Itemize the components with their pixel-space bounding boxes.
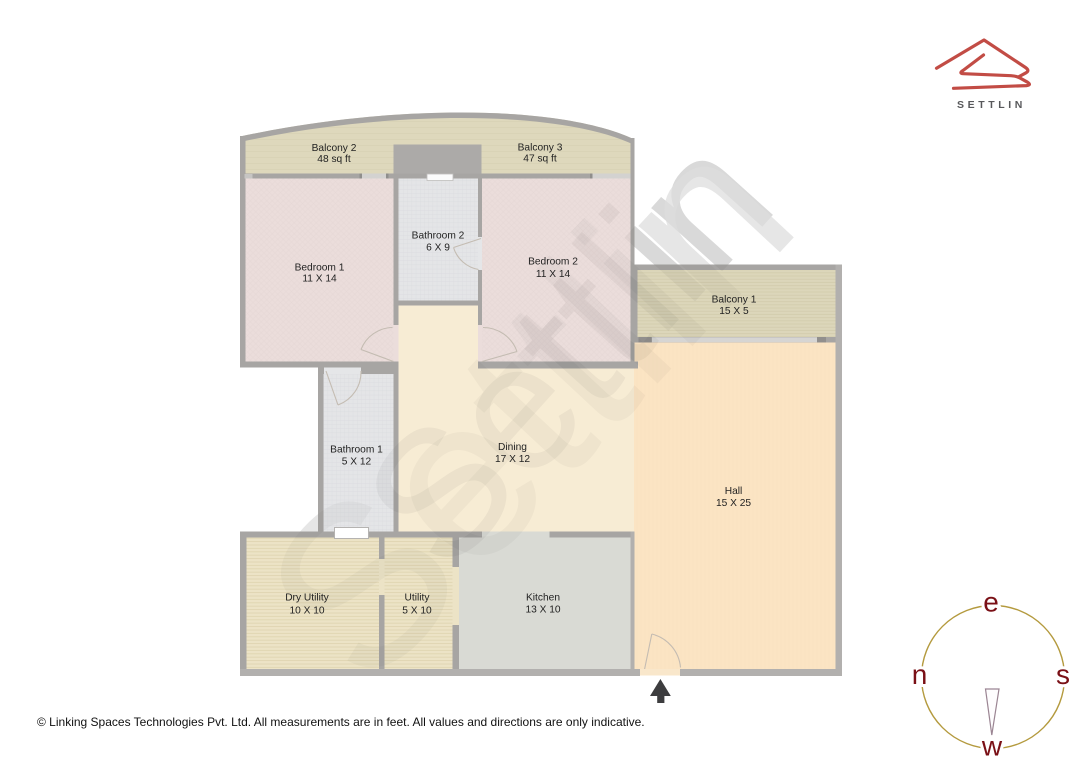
svg-text:11 X 14: 11 X 14 — [302, 274, 337, 285]
svg-text:13 X 10: 13 X 10 — [525, 604, 560, 615]
svg-text:6 X 9: 6 X 9 — [426, 243, 450, 254]
svg-text:© Linking Spaces Technologies: © Linking Spaces Technologies Pvt. Ltd. … — [37, 715, 645, 729]
svg-text:Kitchen: Kitchen — [526, 593, 560, 604]
svg-text:e: e — [983, 587, 999, 618]
svg-text:Dining: Dining — [498, 442, 527, 453]
svg-text:Utility: Utility — [405, 593, 431, 604]
svg-text:Hall: Hall — [725, 486, 743, 497]
svg-text:s: s — [1056, 659, 1070, 690]
svg-text:11 X 14: 11 X 14 — [536, 269, 571, 280]
svg-text:5 X 10: 5 X 10 — [402, 606, 432, 617]
svg-text:Balcony 3: Balcony 3 — [518, 143, 563, 154]
svg-text:n: n — [912, 659, 928, 690]
svg-text:Bedroom 1: Bedroom 1 — [295, 263, 345, 274]
svg-text:17 X 12: 17 X 12 — [495, 454, 530, 465]
svg-text:10 X 10: 10 X 10 — [289, 606, 324, 617]
svg-text:Bathroom 2: Bathroom 2 — [412, 231, 465, 242]
svg-text:Balcony 1: Balcony 1 — [712, 295, 757, 306]
svg-text:47 sq ft: 47 sq ft — [523, 154, 557, 165]
svg-text:Balcony 2: Balcony 2 — [312, 143, 357, 154]
svg-text:Bathroom 1: Bathroom 1 — [330, 445, 383, 456]
svg-text:48 sq ft: 48 sq ft — [317, 154, 351, 165]
svg-text:Dry Utility: Dry Utility — [285, 593, 329, 604]
svg-text:15 X 25: 15 X 25 — [716, 498, 751, 509]
svg-text:Bedroom 2: Bedroom 2 — [528, 257, 578, 268]
svg-text:SETTLIN: SETTLIN — [957, 99, 1026, 111]
svg-text:15 X 5: 15 X 5 — [719, 306, 749, 317]
svg-text:5 X 12: 5 X 12 — [342, 457, 372, 468]
svg-text:w: w — [981, 731, 1003, 762]
